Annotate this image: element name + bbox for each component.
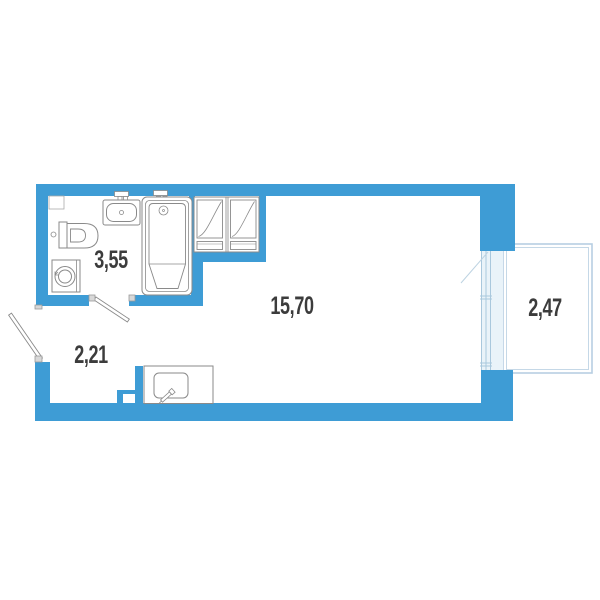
bathroom-corner-duct: [49, 196, 64, 209]
bathtub-icon: [142, 191, 192, 296]
area-label-living-room: 15,70: [263, 297, 321, 315]
wall-left-bathroom: [36, 196, 48, 306]
vent-shaft-icon: [194, 197, 259, 252]
toilet-icon: [51, 222, 98, 248]
wall-bathroom-right-lower: [191, 262, 203, 306]
sink-icon: [103, 192, 140, 226]
kitchen-sink-icon: [144, 366, 213, 405]
area-label-bathroom: 3,55: [82, 251, 140, 269]
bathroom-door-icon: [89, 295, 135, 322]
wall-kitchen-stub: [135, 366, 143, 403]
wall-right-top-block: [480, 184, 515, 251]
area-label-hallway: 2,21: [62, 346, 120, 364]
wall-right-bottom-block: [481, 370, 513, 410]
wall-top: [36, 184, 515, 196]
washing-machine-icon: [52, 260, 80, 292]
wall-shaft-bottom: [189, 252, 266, 262]
entrance-door-icon: [9, 305, 43, 362]
kitchen-duct-hole: [123, 394, 135, 403]
wall-bathroom-bottom-left: [36, 295, 89, 306]
area-label-balcony: 2,47: [516, 299, 574, 317]
wall-bottom: [35, 403, 513, 421]
balcony-glazing: [461, 251, 503, 370]
floor-plan: 3,55 2,21 15,70 2,47: [0, 0, 600, 600]
